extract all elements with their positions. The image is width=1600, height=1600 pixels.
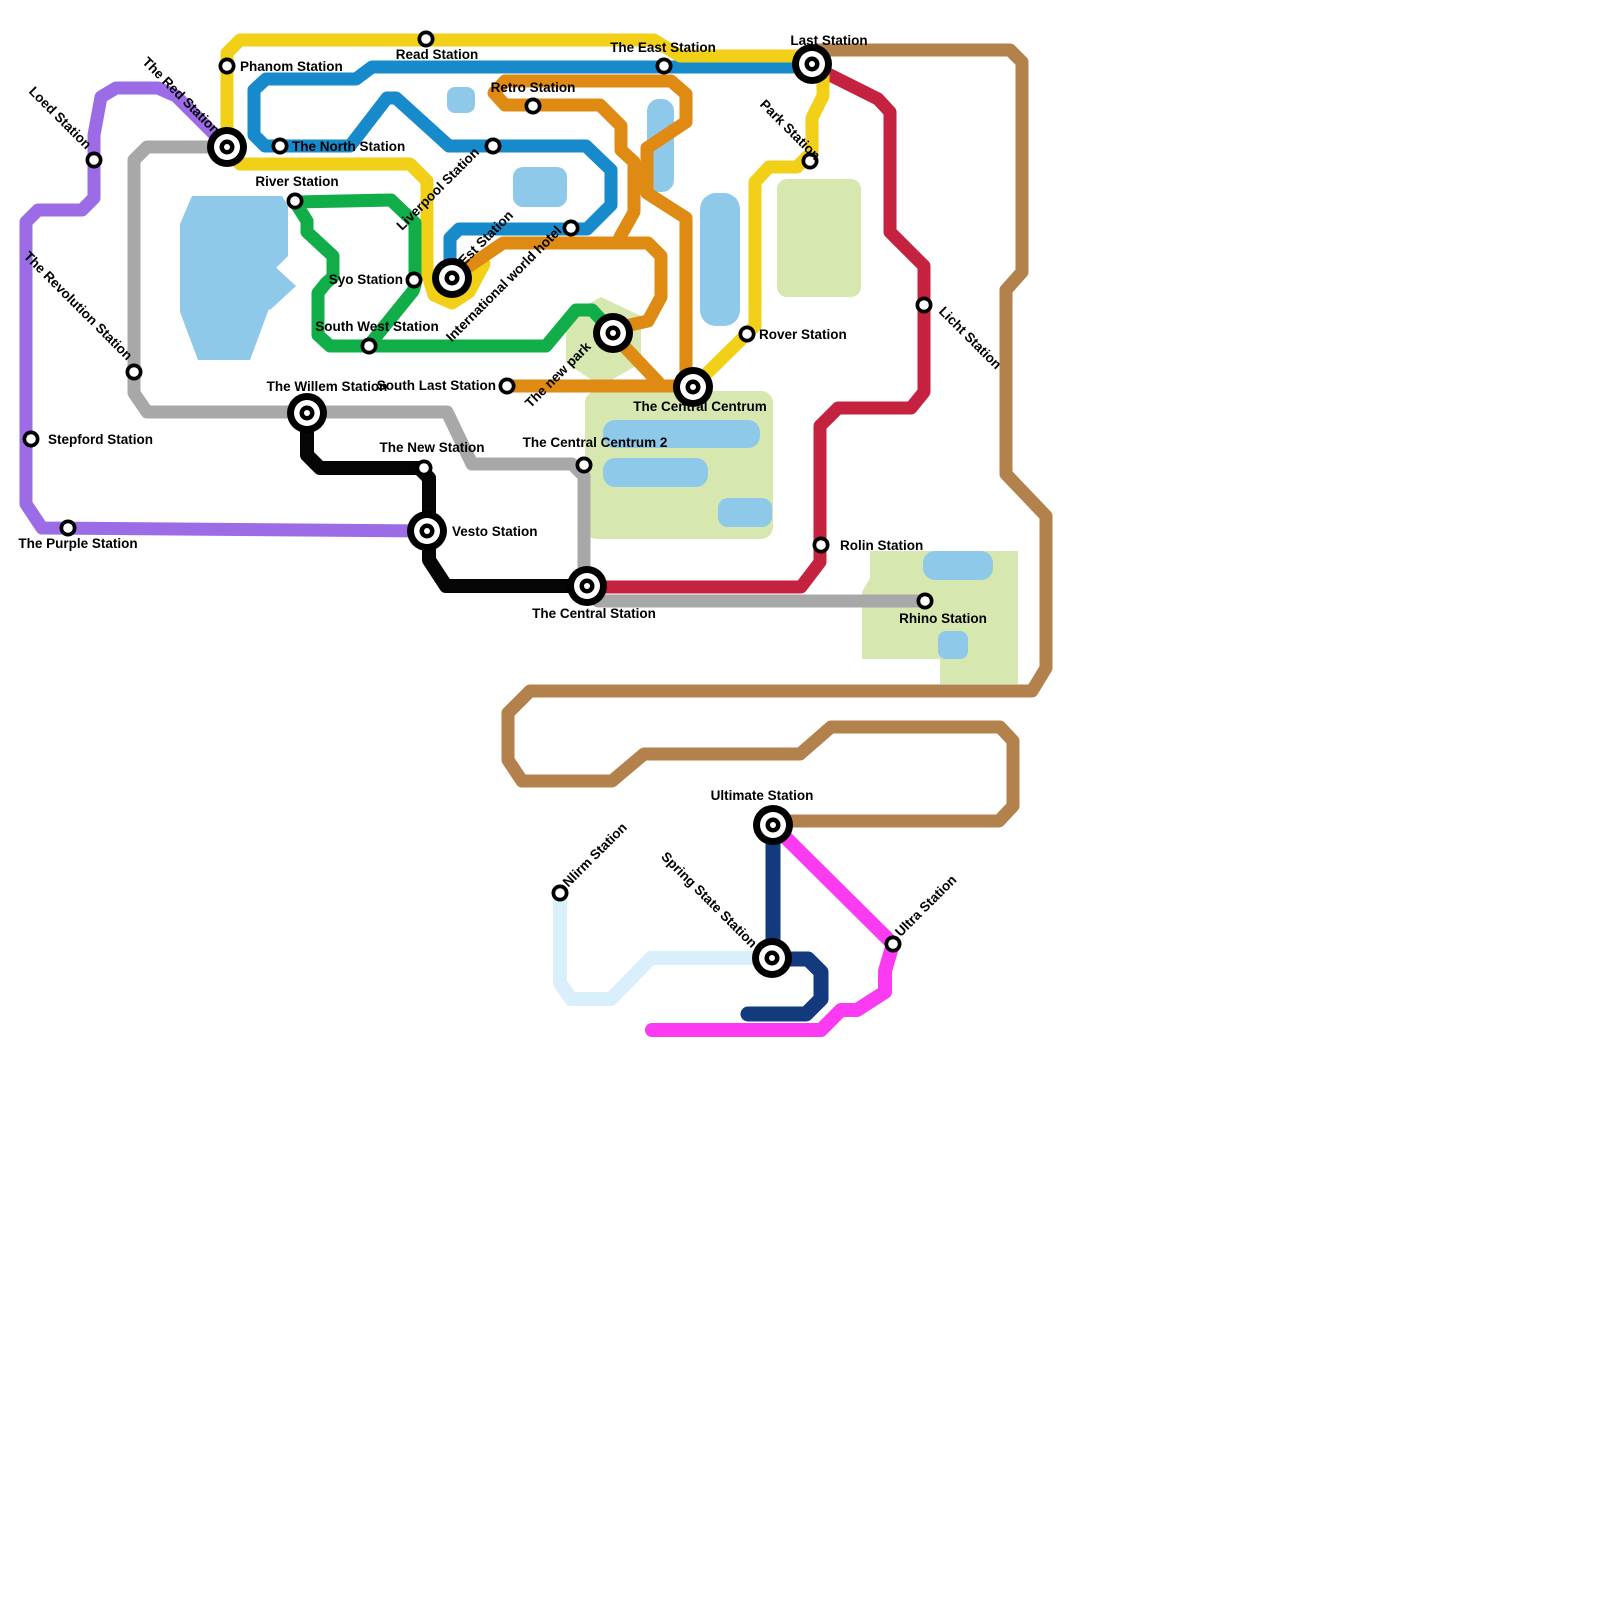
label-phanom-station: Phanom Station <box>240 59 343 74</box>
label-rolin-station: Rolin Station <box>840 538 923 553</box>
station-marker <box>919 300 929 310</box>
station-syo-station <box>406 272 423 289</box>
label-the-purple-station: The Purple Station <box>18 536 137 551</box>
station-marker <box>419 463 429 473</box>
station-retro-station <box>525 98 542 115</box>
park-area-1 <box>777 179 861 297</box>
label-south-last-station: South Last Station <box>377 378 496 393</box>
station-the-new-station <box>416 460 433 477</box>
station-licht-station <box>916 297 933 314</box>
station-south-west-station <box>361 338 378 355</box>
station-marker <box>63 523 73 533</box>
station-the-purple-station <box>60 520 77 537</box>
station-rolin-station <box>813 537 830 554</box>
station-the-willem-station <box>287 393 327 433</box>
label-read-station: Read Station <box>396 47 479 62</box>
station-the-central-centrum-2 <box>576 457 593 474</box>
station-the-central-station <box>567 566 607 606</box>
station-marker <box>690 384 696 390</box>
station-marker <box>555 888 565 898</box>
label-river-station: River Station <box>255 174 338 189</box>
label-retro-station: Retro Station <box>491 80 576 95</box>
water-area-11 <box>938 631 968 659</box>
station-marker <box>566 223 576 233</box>
station-marker <box>888 939 898 949</box>
label-the-east-station: The East Station <box>610 40 716 55</box>
label-stepford-station: Stepford Station <box>48 432 153 447</box>
station-marker <box>528 101 538 111</box>
label-the-willem-station: The Willem Station <box>267 379 388 394</box>
label-south-west-station: South West Station <box>315 319 439 334</box>
station-marker <box>579 460 589 470</box>
station-marker <box>502 381 512 391</box>
label-the-central-centrum-2: The Central Centrum 2 <box>523 435 668 450</box>
label-syo-station: Syo Station <box>329 272 403 287</box>
station-nlirm-station <box>552 885 569 902</box>
station-marker <box>304 410 310 416</box>
label-the-new-station: The New Station <box>379 440 484 455</box>
station-marker <box>584 583 590 589</box>
station-marker <box>742 329 752 339</box>
station-international-world-hotel <box>563 220 580 237</box>
water-area-9 <box>718 498 772 527</box>
station-marker <box>421 34 431 44</box>
station-phanom-station <box>219 58 236 75</box>
water-area-3 <box>447 87 475 113</box>
station-rover-station <box>739 326 756 343</box>
station-marker <box>424 528 430 534</box>
station-marker <box>488 141 498 151</box>
station-loed-station <box>86 152 103 169</box>
station-marker <box>659 61 669 71</box>
station-marker <box>89 155 99 165</box>
station-river-station <box>287 193 304 210</box>
label-last-station: Last Station <box>790 33 867 48</box>
station-marker <box>129 367 139 377</box>
station-south-last-station <box>499 378 516 395</box>
station-marker <box>409 275 419 285</box>
station-vesto-station <box>407 511 447 551</box>
water-area-8 <box>603 458 708 487</box>
station-the-revolution-station <box>126 364 143 381</box>
lightblue-line <box>560 893 764 999</box>
station-marker <box>920 596 930 606</box>
station-spring-state-station <box>752 938 792 978</box>
station-marker <box>770 822 776 828</box>
label-ultimate-station: Ultimate Station <box>711 788 814 803</box>
station-the-new-park <box>593 313 633 353</box>
station-marker <box>364 341 374 351</box>
station-marker <box>449 275 455 281</box>
station-marker <box>275 141 285 151</box>
station-ultra-station <box>885 936 902 953</box>
station-ultimate-station <box>753 805 793 845</box>
station-marker <box>290 196 300 206</box>
water-area-10 <box>923 551 993 580</box>
label-the-central-station: The Central Station <box>532 606 656 621</box>
station-marker <box>769 955 775 961</box>
label-the-north-station: The North Station <box>292 139 405 154</box>
station-last-station <box>792 44 832 84</box>
metro-map: Phanom StationRead StationThe East Stati… <box>0 0 1600 1600</box>
label-rover-station: Rover Station <box>759 327 847 342</box>
station-marker <box>222 61 232 71</box>
label-the-red-station: The Red Station <box>140 54 223 137</box>
label-nlirm-station: Nlirm Station <box>560 820 630 890</box>
station-read-station <box>418 31 435 48</box>
label-the-central-centrum: The Central Centrum <box>633 399 767 414</box>
water-area-6 <box>700 193 740 326</box>
station-the-east-station <box>656 58 673 75</box>
station-marker <box>809 61 815 67</box>
metro-map-canvas: Phanom StationRead StationThe East Stati… <box>0 0 1600 1600</box>
station-the-north-station <box>272 138 289 155</box>
water-area-4 <box>513 167 567 207</box>
label-spring-state-station: Spring State Station <box>658 849 760 951</box>
station-stepford-station <box>23 431 40 448</box>
station-marker <box>26 434 36 444</box>
label-licht-station: Licht Station <box>936 304 1004 372</box>
station-rhino-station <box>917 593 934 610</box>
label-rhino-station: Rhino Station <box>899 611 987 626</box>
station-marker <box>610 330 616 336</box>
label-ultra-station: Ultra Station <box>892 872 959 939</box>
label-vesto-station: Vesto Station <box>452 524 538 539</box>
label-loed-station: Loed Station <box>26 84 94 152</box>
station-marker <box>224 144 230 150</box>
label-the-revolution-station: The Revolution Station <box>21 249 136 364</box>
station-marker <box>816 540 826 550</box>
station-liverpool-station <box>485 138 502 155</box>
